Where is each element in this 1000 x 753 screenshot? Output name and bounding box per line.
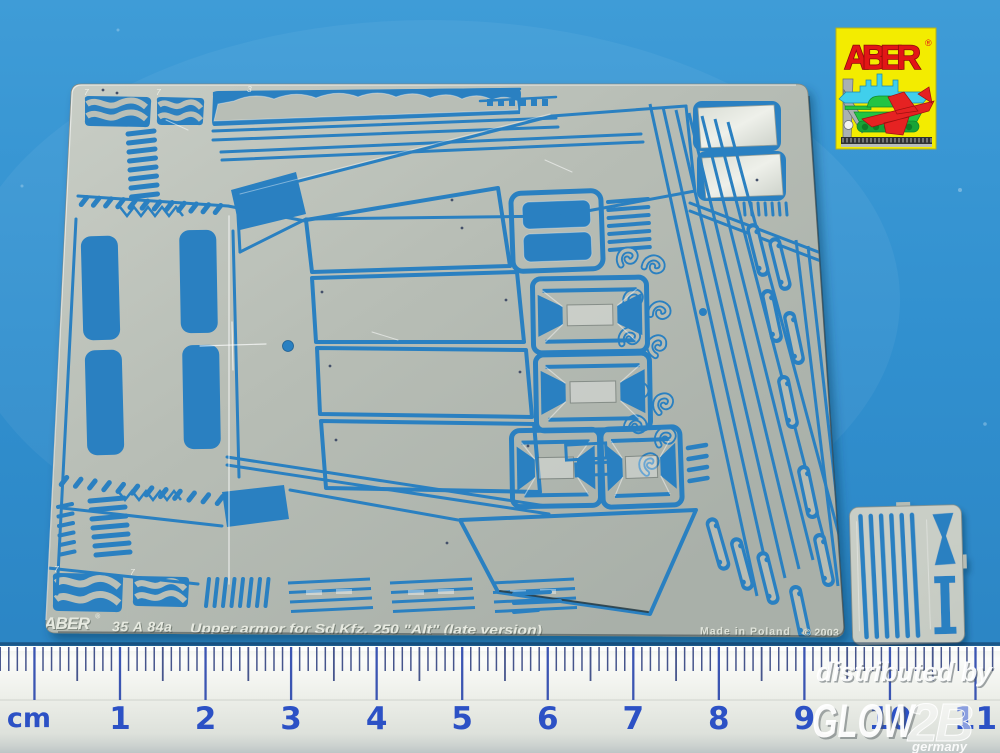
aber-logo: ABER ®	[836, 28, 936, 149]
part-label: 7	[156, 87, 161, 97]
hook-part	[619, 250, 635, 265]
sheet-brand: ABER	[43, 614, 92, 633]
fender-part	[85, 96, 151, 127]
part-label: 7	[130, 567, 135, 577]
ruler-number: 4	[366, 701, 388, 737]
ruler-number: 7	[623, 701, 645, 737]
ruler-number: 1	[109, 701, 131, 737]
vision-port-cutout	[182, 345, 221, 450]
ruler-number: 2	[195, 701, 217, 737]
watermark-brand: GLOW	[812, 694, 917, 747]
round-hole	[283, 341, 294, 352]
logo-ruler-icon	[841, 137, 932, 147]
watermark-country: germany	[911, 739, 970, 753]
ruler-number: 5	[451, 701, 473, 737]
part-label: 7	[54, 564, 59, 574]
stowage-bin-part	[535, 353, 650, 431]
fender-part	[53, 573, 123, 612]
fender-part	[157, 97, 204, 125]
ruler-number: 8	[708, 701, 730, 737]
sheet-registered-mark: ®	[95, 612, 101, 620]
logo-brand: ABER	[844, 39, 922, 77]
watermark: distributed by distributed by GLOW GLOW …	[812, 657, 995, 753]
product-photo: 7 7 3 2 7 7 ABER ABER ® 35 A 84a 35 A 84…	[0, 0, 1000, 753]
stowage-bin-part	[511, 429, 600, 507]
watermark-line1: distributed by	[816, 657, 994, 687]
vision-port-cutout	[179, 230, 218, 334]
logo-registered-mark: ®	[925, 38, 932, 48]
ruler-unit-label: cm	[7, 703, 51, 734]
ruler-number: 6	[537, 701, 559, 737]
vision-port-cutout	[85, 350, 125, 456]
round-hole	[699, 308, 707, 316]
small-fret	[849, 500, 969, 645]
ruler-number: 3	[280, 701, 302, 737]
part-label: 7	[84, 87, 89, 97]
vision-port-cutout	[81, 236, 121, 341]
